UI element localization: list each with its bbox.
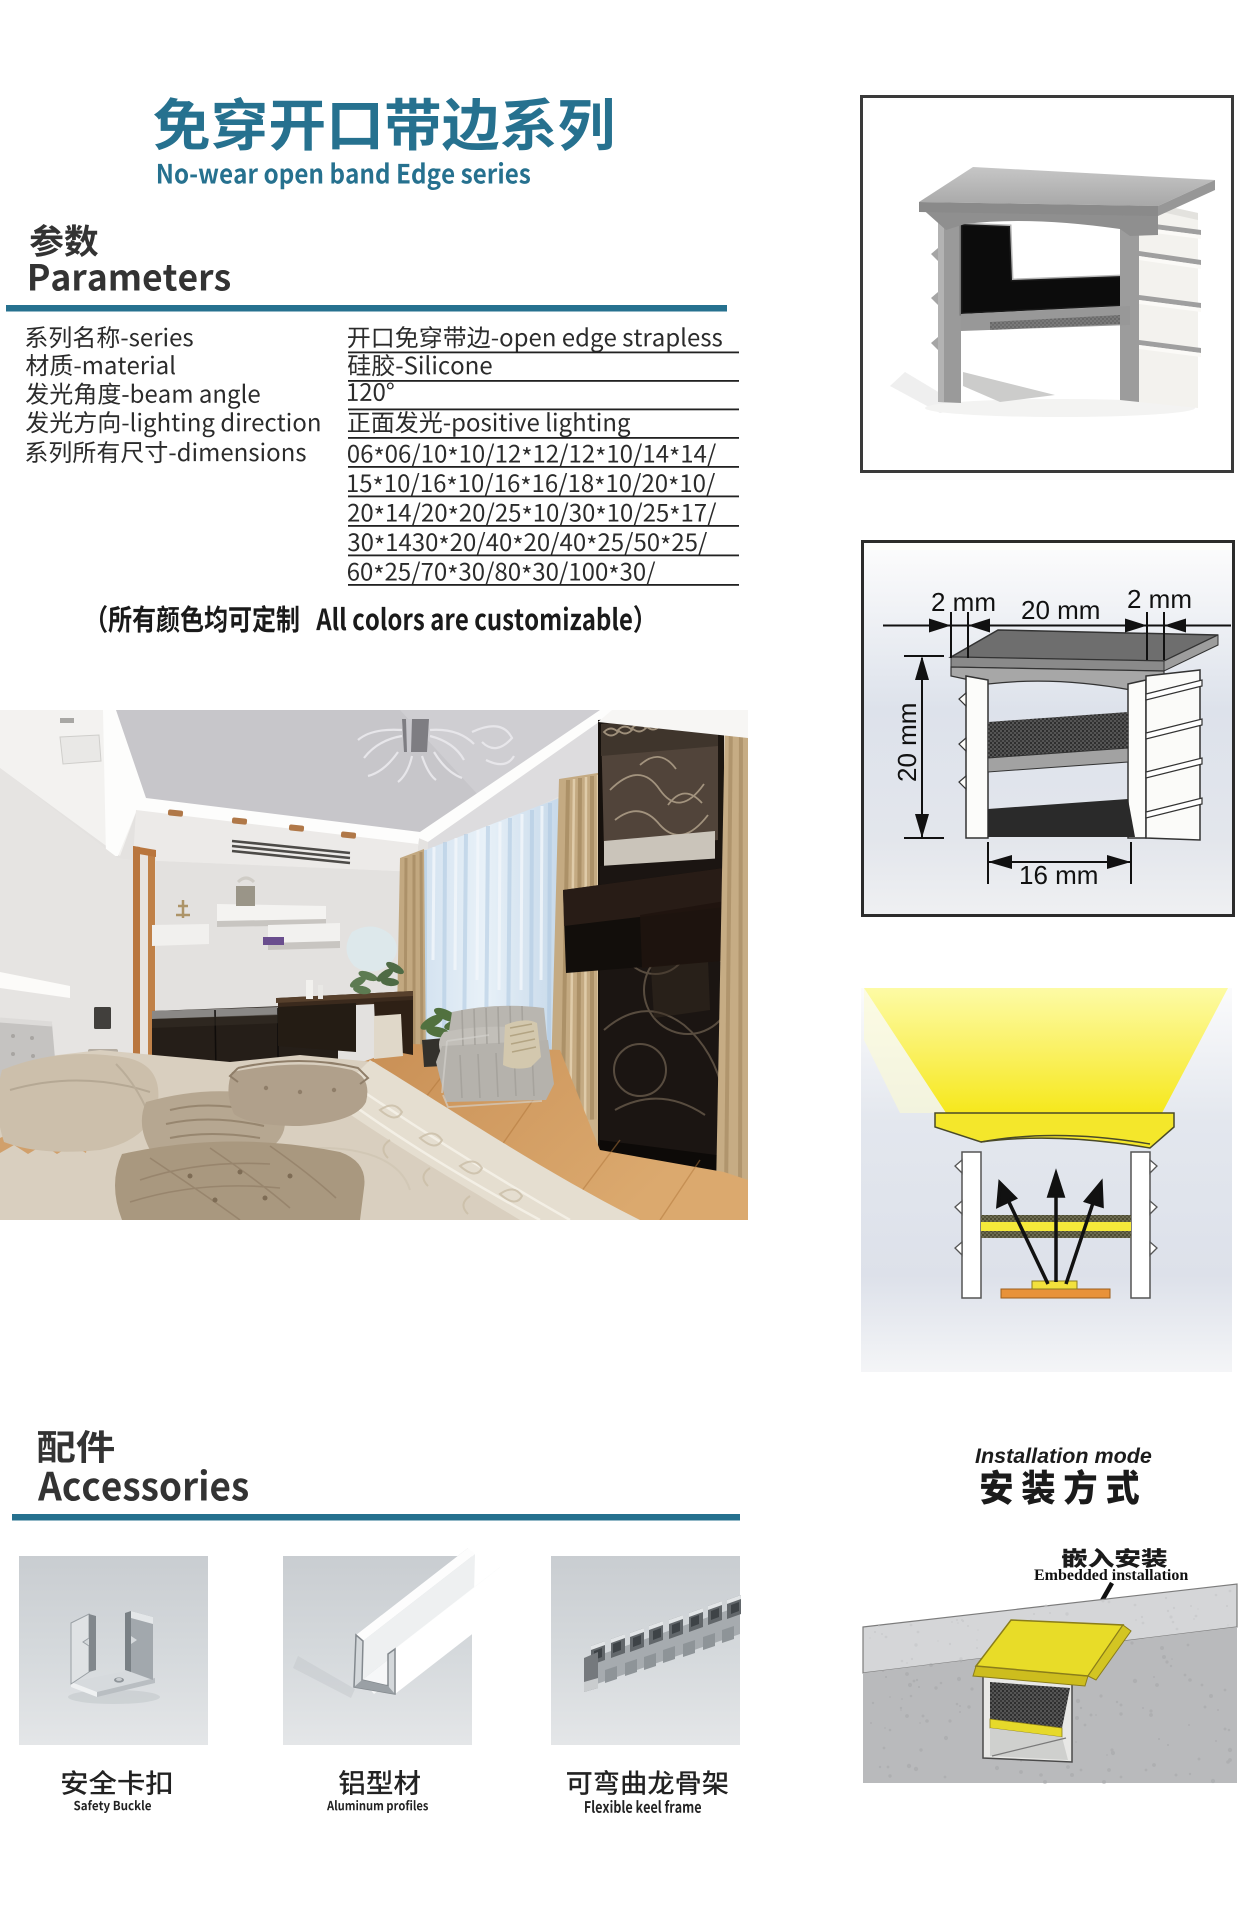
- svg-text:Installation mode: Installation mode: [975, 1444, 1152, 1468]
- svg-text:20 mm: 20 mm: [1021, 595, 1100, 625]
- svg-text:20 mm: 20 mm: [892, 703, 922, 782]
- svg-text:Embedded installation: Embedded installation: [1034, 1567, 1188, 1584]
- svg-text:16 mm: 16 mm: [1019, 860, 1098, 890]
- svg-text:2 mm: 2 mm: [931, 587, 996, 617]
- svg-text:2 mm: 2 mm: [1127, 584, 1192, 614]
